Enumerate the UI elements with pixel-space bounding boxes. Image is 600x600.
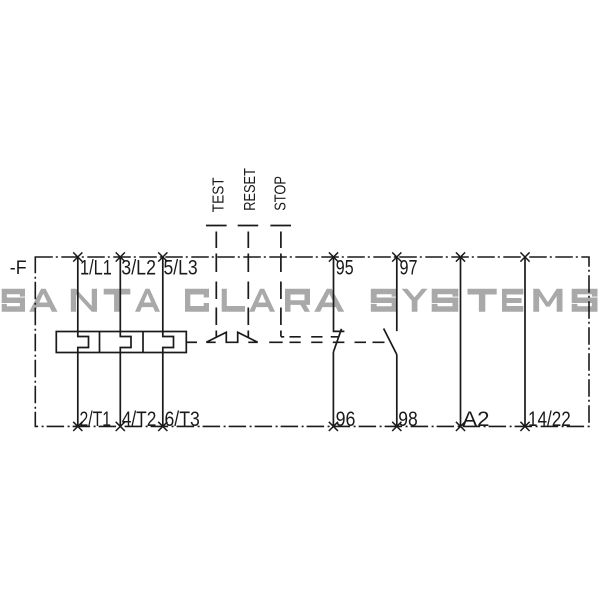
svg-text:2/T1: 2/T1 [80,408,112,431]
svg-text:5/L3: 5/L3 [164,257,198,280]
svg-text:14/22: 14/22 [528,408,571,431]
svg-text:95: 95 [336,257,354,280]
svg-text:STOP: STOP [272,176,289,211]
svg-text:96: 96 [336,408,356,431]
svg-text:A2: A2 [462,408,489,431]
svg-text:1/L1: 1/L1 [80,257,112,280]
svg-text:6/T3: 6/T3 [165,408,200,431]
svg-text:98: 98 [398,408,418,431]
svg-text:3/L2: 3/L2 [121,257,156,280]
svg-text:-F: -F [10,258,27,279]
svg-text:97: 97 [400,257,418,280]
svg-text:4/T2: 4/T2 [122,408,157,431]
svg-text:TEST: TEST [211,177,228,212]
svg-text:RESET: RESET [242,168,259,211]
